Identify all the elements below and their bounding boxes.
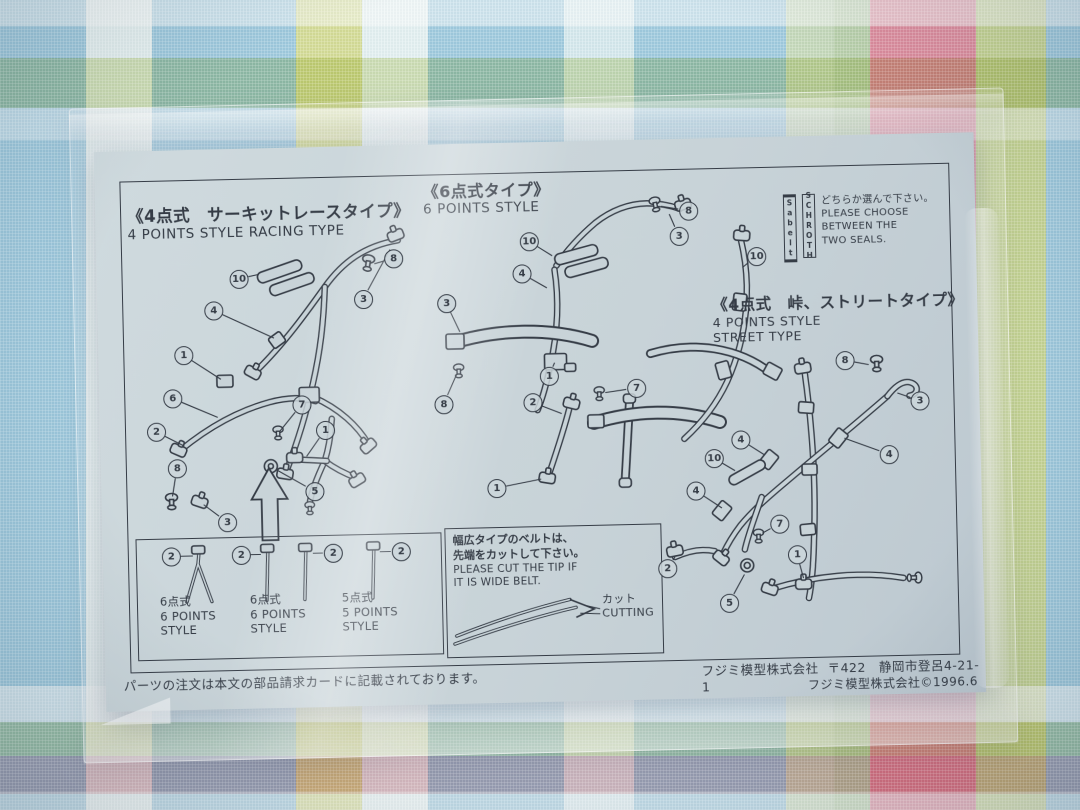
- photo-vignette: [0, 0, 1080, 810]
